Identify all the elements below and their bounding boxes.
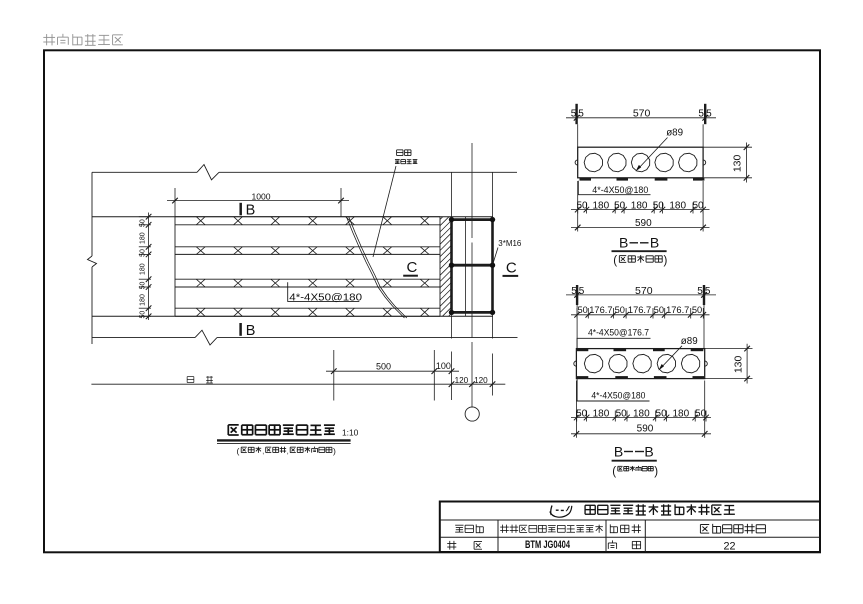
svg-text:1:10: 1:10 [342,427,359,437]
svg-text:5: 5 [579,286,585,297]
svg-text:130: 130 [732,355,744,373]
svg-text:B: B [644,443,653,459]
svg-text:500: 500 [376,361,391,371]
svg-text:ø89: ø89 [666,127,683,138]
svg-text:50: 50 [654,305,664,315]
svg-text:1000: 1000 [251,192,270,202]
svg-text:590: 590 [637,423,654,434]
svg-text:176.7: 176.7 [666,305,689,315]
svg-text:180: 180 [593,409,610,420]
svg-text:ø89: ø89 [681,336,698,347]
svg-text:50: 50 [576,409,588,420]
svg-text:180: 180 [631,200,648,211]
svg-text:): ) [333,446,336,456]
svg-text:5: 5 [578,108,584,119]
svg-text:B: B [246,323,256,339]
svg-text:180: 180 [669,200,686,211]
svg-text:C: C [406,259,417,276]
svg-text:5: 5 [705,286,711,297]
svg-text:50: 50 [653,200,665,211]
svg-text:50: 50 [139,282,146,290]
svg-text:5: 5 [698,108,704,119]
svg-text:50: 50 [578,305,588,315]
svg-text:176.7: 176.7 [628,305,651,315]
svg-text:(: ( [237,446,240,456]
svg-text:4*-4X50@180: 4*-4X50@180 [592,185,648,195]
svg-text:C: C [506,259,517,276]
svg-text:50: 50 [692,305,702,315]
svg-text:50: 50 [139,219,146,227]
svg-text:(: ( [613,255,617,267]
svg-text:176.7: 176.7 [589,305,612,315]
svg-text:4*-4X50@176.7: 4*-4X50@176.7 [588,328,649,338]
svg-text:100: 100 [436,361,451,371]
svg-text:590: 590 [635,218,652,229]
svg-text:180: 180 [139,232,146,244]
svg-text:180: 180 [139,263,146,275]
svg-text:180: 180 [139,294,146,306]
svg-text:50: 50 [614,200,626,211]
svg-text:B: B [614,443,623,459]
svg-text:22: 22 [723,540,735,552]
svg-text:50: 50 [576,200,588,211]
svg-text:180: 180 [592,200,609,211]
svg-text:): ) [664,255,668,267]
svg-text:570: 570 [635,285,653,297]
svg-text:BTM JG0404: BTM JG0404 [525,539,570,551]
svg-text:50: 50 [139,311,146,319]
svg-text:5: 5 [571,286,577,297]
svg-text:): ) [654,466,658,478]
svg-text:B: B [650,235,659,251]
svg-text:130: 130 [732,154,744,172]
svg-text:50: 50 [139,249,146,257]
svg-text:570: 570 [633,107,651,119]
svg-text:120: 120 [474,376,488,385]
svg-text:,: , [262,449,264,456]
svg-text:180: 180 [633,409,650,420]
svg-text:5: 5 [571,108,577,119]
svg-text:5: 5 [697,286,703,297]
svg-text:50: 50 [656,409,668,420]
svg-text:50: 50 [615,305,625,315]
svg-text:3*M16: 3*M16 [498,239,522,248]
svg-text:50: 50 [692,200,704,211]
svg-text:B: B [619,235,628,251]
svg-text:5: 5 [706,108,712,119]
svg-text:50: 50 [616,409,628,420]
svg-text:B: B [246,202,256,218]
svg-text:180: 180 [673,409,690,420]
svg-text:(: ( [612,466,616,478]
svg-text:120: 120 [455,376,469,385]
svg-text:4*-4X50@180: 4*-4X50@180 [591,390,645,400]
svg-text:,: , [287,449,289,456]
